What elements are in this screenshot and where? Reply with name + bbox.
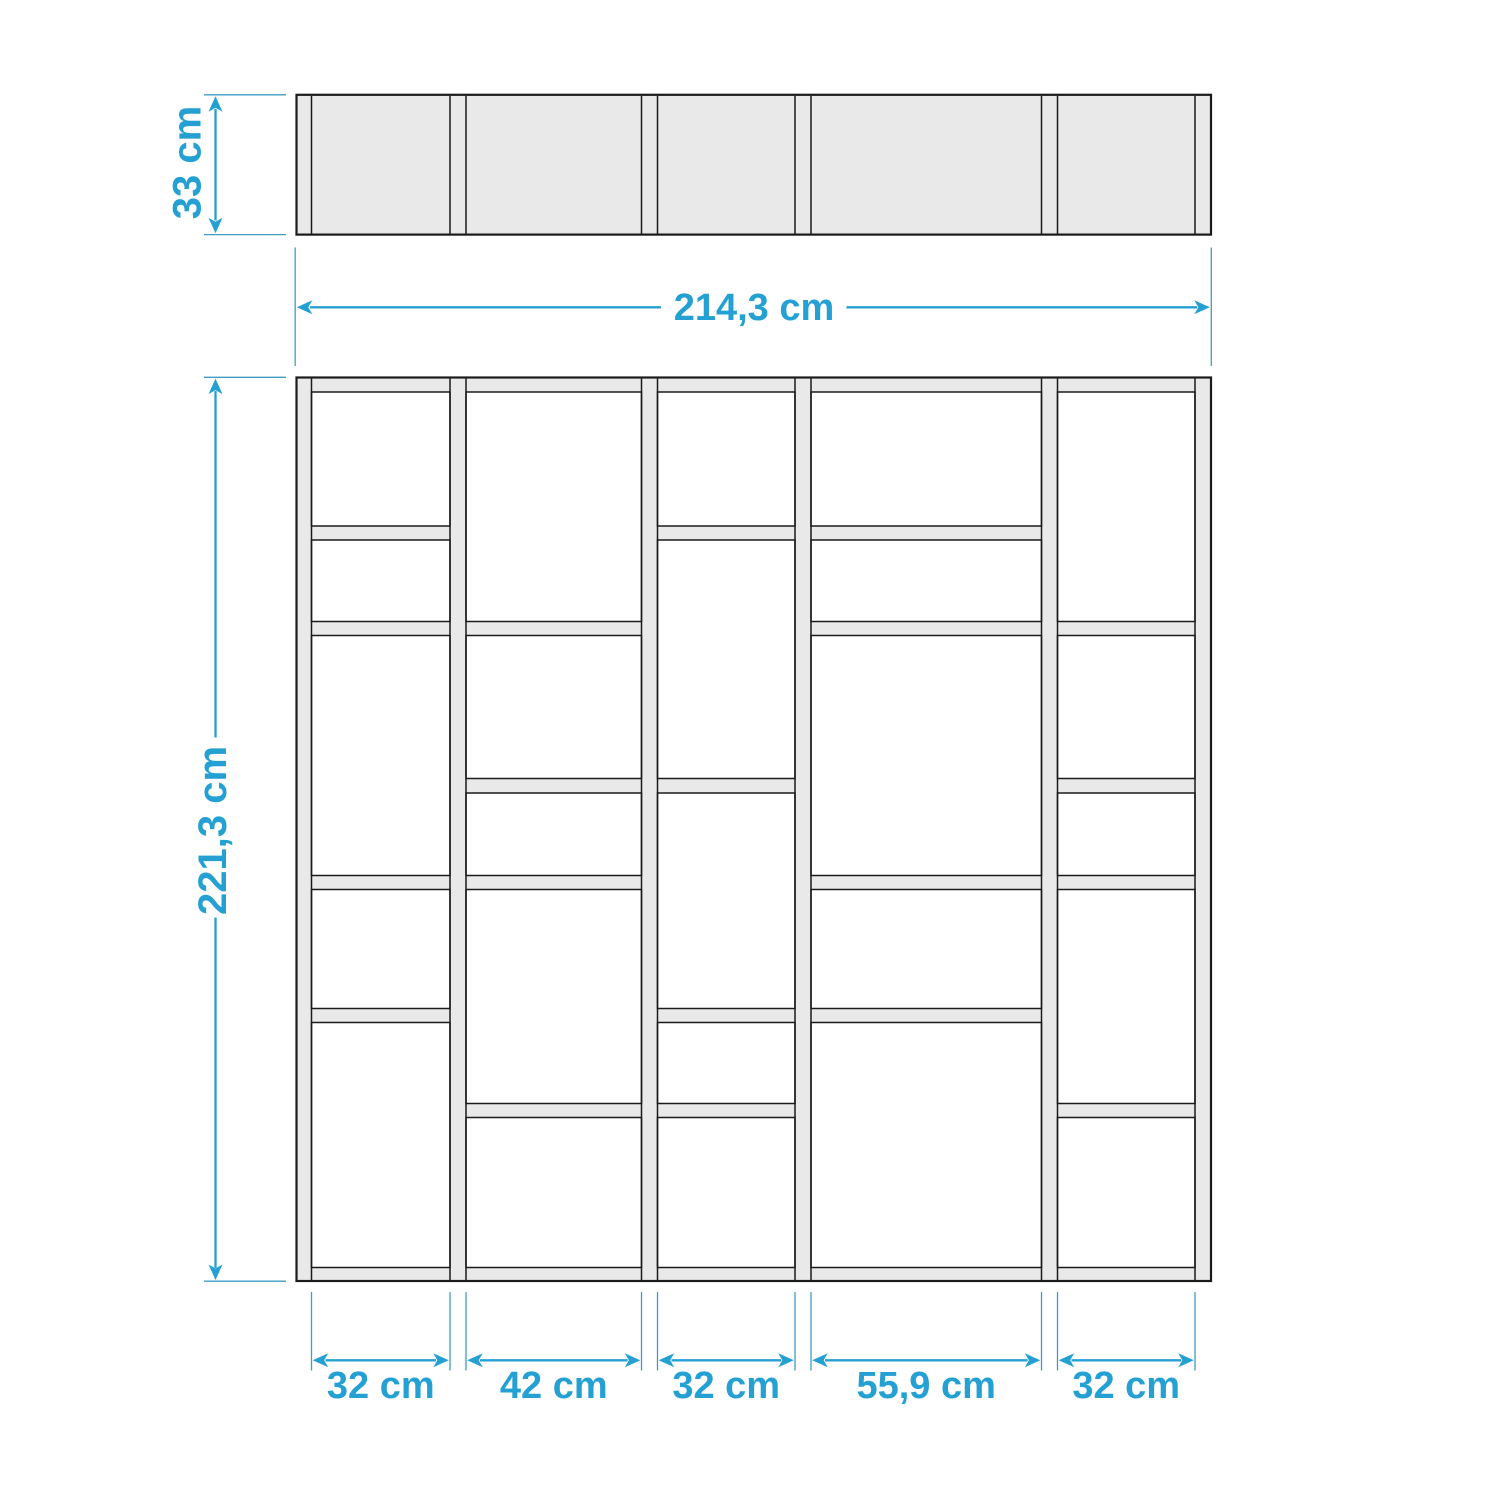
svg-text:55,9 cm: 55,9 cm	[856, 1365, 995, 1407]
svg-text:32 cm: 32 cm	[672, 1365, 780, 1407]
svg-text:42 cm: 42 cm	[500, 1365, 608, 1407]
svg-text:32 cm: 32 cm	[327, 1365, 435, 1407]
svg-text:214,3 cm: 214,3 cm	[674, 287, 835, 329]
svg-text:33 cm: 33 cm	[166, 106, 210, 219]
svg-text:221,3 cm: 221,3 cm	[191, 746, 235, 915]
svg-text:32 cm: 32 cm	[1072, 1365, 1180, 1407]
